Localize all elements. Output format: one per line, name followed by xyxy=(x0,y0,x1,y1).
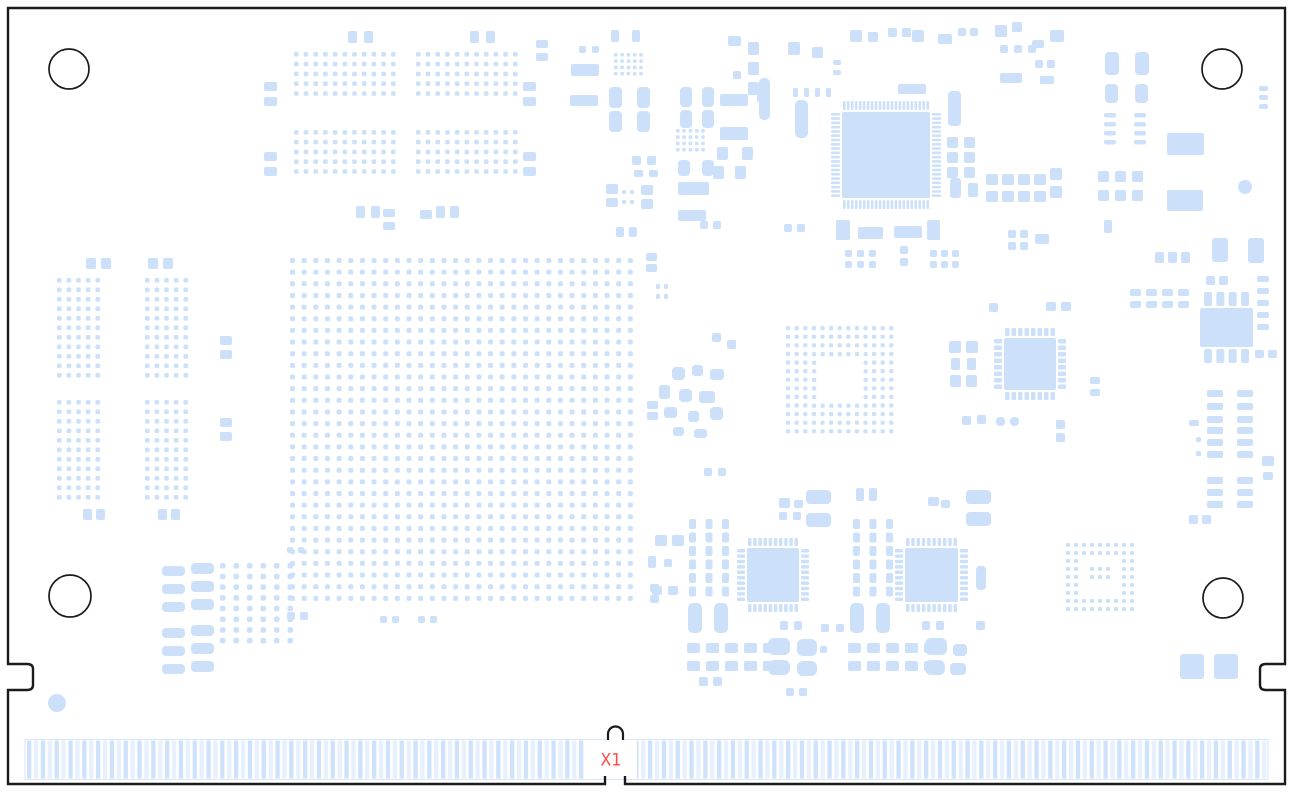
connector-pin xyxy=(1131,741,1135,779)
ic-pin xyxy=(1012,392,1017,400)
bga-ball xyxy=(581,340,586,345)
bga-ball xyxy=(465,526,470,531)
connector-pin xyxy=(172,741,176,779)
connector-pin xyxy=(269,741,273,779)
bga-ball xyxy=(313,340,318,345)
bga-ball xyxy=(465,81,470,86)
bga-ball xyxy=(441,340,446,345)
bga-ball xyxy=(812,326,816,330)
bga-ball xyxy=(546,258,551,263)
bga-ball xyxy=(313,491,318,496)
bga-ball xyxy=(416,130,421,135)
ic-pin xyxy=(994,352,1002,357)
ic-pin xyxy=(1058,365,1066,370)
bga-ball xyxy=(95,448,100,453)
bga-ball xyxy=(145,448,150,453)
bga-ball xyxy=(846,343,850,347)
ic-pin xyxy=(960,592,968,596)
bga-ball xyxy=(570,316,575,321)
connector-pin xyxy=(103,741,107,779)
bga-ball xyxy=(418,398,423,403)
bga-ball xyxy=(220,627,226,633)
bga-ball xyxy=(558,561,563,566)
bga-ball xyxy=(581,584,586,589)
bga-ball xyxy=(803,403,807,407)
bga-ball xyxy=(76,457,81,462)
bga-ball xyxy=(558,409,563,414)
bga-ball xyxy=(523,526,528,531)
bga-ball xyxy=(76,486,81,491)
bga-ball xyxy=(488,456,493,461)
bga-ball xyxy=(535,538,540,543)
bga-ball xyxy=(435,159,440,164)
bga-ball xyxy=(689,135,693,139)
bga-ball xyxy=(558,433,563,438)
bga-ball xyxy=(383,281,388,286)
capacitor-pad xyxy=(689,587,696,597)
bga-ball xyxy=(593,363,598,368)
bga-ball xyxy=(343,159,348,164)
bga-ball xyxy=(290,351,295,356)
bga-ball xyxy=(1130,599,1134,603)
bga-ball xyxy=(465,584,470,589)
ic-pin xyxy=(795,604,799,612)
bga-ball xyxy=(337,573,342,578)
bga-ball xyxy=(383,596,388,601)
bga-ball xyxy=(145,410,150,415)
bga-ball xyxy=(812,421,816,425)
bga-ball xyxy=(605,479,610,484)
connector-pin xyxy=(1152,741,1156,779)
bga-ball xyxy=(628,281,633,286)
bga-ball xyxy=(511,351,516,356)
bga-ball xyxy=(441,503,446,508)
bga-ball xyxy=(407,293,412,298)
bga-ball xyxy=(863,429,867,433)
bga-ball xyxy=(290,316,295,321)
connector-pin xyxy=(1034,741,1038,779)
passive-pad xyxy=(964,137,975,148)
bga-ball xyxy=(628,491,633,496)
passive-pad xyxy=(720,94,748,106)
bga-ball xyxy=(391,62,396,67)
bga-ball xyxy=(416,62,421,67)
bga-ball xyxy=(348,433,353,438)
bga-ball xyxy=(795,326,799,330)
bga-ball xyxy=(558,479,563,484)
bga-ball xyxy=(372,421,377,426)
bga-ball xyxy=(76,476,81,481)
bga-ball xyxy=(76,373,81,378)
bga-ball xyxy=(889,412,893,416)
bga-ball xyxy=(889,369,893,373)
bga-ball xyxy=(381,91,386,96)
connector-pin xyxy=(903,741,907,779)
bga-ball xyxy=(1074,591,1078,595)
bga-ball xyxy=(453,398,458,403)
passive-pad xyxy=(1135,52,1149,75)
passive-pad xyxy=(912,30,924,42)
bga-ball xyxy=(67,438,72,443)
bga-ball xyxy=(441,421,446,426)
bga-ball xyxy=(57,278,62,283)
bga-ball xyxy=(407,316,412,321)
passive-pad xyxy=(902,28,911,37)
bga-ball xyxy=(302,433,307,438)
bga-ball xyxy=(523,281,528,286)
bga-ball xyxy=(881,421,885,425)
bga-ball xyxy=(503,150,508,155)
bga-ball xyxy=(325,293,330,298)
bga-ball xyxy=(430,456,435,461)
passive-pad xyxy=(845,261,852,268)
bga-ball xyxy=(1122,575,1126,579)
ic-pin xyxy=(843,101,846,110)
bga-ball xyxy=(395,479,400,484)
bga-ball xyxy=(616,281,621,286)
passive-pad xyxy=(968,183,978,197)
bga-ball xyxy=(455,130,460,135)
bga-ball xyxy=(1130,583,1134,587)
ic-pin xyxy=(774,538,778,546)
passive-pad xyxy=(1046,302,1056,311)
bga-ball xyxy=(325,444,330,449)
bga-ball xyxy=(372,561,377,566)
passive-pad xyxy=(616,227,624,237)
bga-ball xyxy=(676,135,680,139)
bga-ball xyxy=(546,573,551,578)
connector-pin xyxy=(1055,741,1059,779)
connector-pin xyxy=(724,741,728,779)
bga-ball xyxy=(57,297,62,302)
bga-ball xyxy=(511,421,516,426)
bga-ball xyxy=(337,340,342,345)
bga-ball xyxy=(546,561,551,566)
bga-ball xyxy=(234,584,240,590)
bga-ball xyxy=(407,503,412,508)
bga-ball xyxy=(523,549,528,554)
ic-pin xyxy=(994,365,1002,370)
bga-ball xyxy=(465,62,470,67)
bga-ball xyxy=(881,429,885,433)
ic-pin xyxy=(938,538,942,546)
passive-pad xyxy=(836,624,844,632)
bga-ball xyxy=(593,421,598,426)
bga-ball xyxy=(616,421,621,426)
bga-ball xyxy=(348,526,353,531)
bga-ball xyxy=(395,351,400,356)
bga-ball xyxy=(523,468,528,473)
connector-pin xyxy=(1221,741,1225,779)
ic-pin xyxy=(960,554,968,558)
bga-ball xyxy=(383,468,388,473)
passive-pad xyxy=(804,88,809,97)
connector-pin xyxy=(683,741,687,779)
passive-pad xyxy=(900,246,908,254)
bga-ball xyxy=(1066,591,1070,595)
bga-ball xyxy=(234,574,240,580)
passive-pad xyxy=(96,509,105,520)
bga-ball xyxy=(628,375,633,380)
bga-ball xyxy=(430,270,435,275)
bga-ball xyxy=(164,307,169,312)
ic-pin xyxy=(831,194,840,197)
bga-ball xyxy=(889,352,893,356)
passive-pad xyxy=(941,500,950,508)
bga-ball xyxy=(343,91,348,96)
bga-ball xyxy=(288,638,294,644)
passive-pad xyxy=(1115,171,1126,182)
passive-pad xyxy=(1132,190,1143,201)
bga-ball xyxy=(829,352,833,356)
bga-ball xyxy=(313,52,318,57)
bga-ball xyxy=(183,297,188,302)
bga-ball xyxy=(546,351,551,356)
bga-ball xyxy=(570,491,575,496)
bga-ball xyxy=(881,335,885,339)
passive-pad xyxy=(720,127,748,140)
passive-pad xyxy=(611,30,619,42)
connector-pin xyxy=(572,741,576,779)
bga-ball xyxy=(323,159,328,164)
bga-ball xyxy=(465,444,470,449)
bga-ball xyxy=(465,538,470,543)
bga-ball xyxy=(535,433,540,438)
passive-pad xyxy=(702,110,714,128)
passive-pad xyxy=(300,612,308,620)
ic-pin xyxy=(932,156,941,159)
bga-ball xyxy=(288,584,294,590)
bga-ball xyxy=(333,130,338,135)
bga-ball xyxy=(290,444,295,449)
ic-pin xyxy=(831,169,840,172)
bga-ball xyxy=(247,638,253,644)
passive-pad xyxy=(1002,174,1014,185)
bga-ball xyxy=(795,369,799,373)
bga-ball xyxy=(855,429,859,433)
passive-pad xyxy=(1130,289,1141,296)
bga-ball xyxy=(620,53,624,57)
bga-ball xyxy=(838,326,842,330)
bga-ball xyxy=(337,328,342,333)
bga-ball xyxy=(86,486,91,491)
bga-ball xyxy=(465,169,470,174)
bga-ball xyxy=(701,148,705,152)
bga-ball xyxy=(348,305,353,310)
bga-ball xyxy=(313,328,318,333)
bga-ball xyxy=(523,258,528,263)
bga-ball xyxy=(441,305,446,310)
ic-pin xyxy=(926,200,929,209)
capacitor-pad xyxy=(722,533,729,543)
bga-ball xyxy=(616,363,621,368)
bga-ball xyxy=(372,479,377,484)
bga-ball xyxy=(313,140,318,145)
bga-ball xyxy=(476,293,481,298)
ic-pin xyxy=(918,101,921,110)
connector-pin xyxy=(551,741,555,779)
ic-pin xyxy=(831,147,840,150)
bga-ball xyxy=(605,468,610,473)
bga-ball xyxy=(1114,543,1118,547)
bga-ball xyxy=(863,326,867,330)
connector-pin xyxy=(524,741,528,779)
bga-ball xyxy=(593,503,598,508)
bga-ball xyxy=(488,468,493,473)
passive-pad xyxy=(450,206,459,218)
bga-ball xyxy=(500,421,505,426)
connector-pin xyxy=(400,741,404,779)
passive-pad xyxy=(650,595,659,603)
passive-pad xyxy=(1020,242,1028,250)
bga-ball xyxy=(465,421,470,426)
bga-ball xyxy=(1130,567,1134,571)
ic-pin xyxy=(895,581,903,585)
bga-ball xyxy=(474,169,479,174)
connector-pin xyxy=(62,741,66,779)
bga-ball xyxy=(57,326,62,331)
bga-ball xyxy=(164,297,169,302)
bga-ball xyxy=(511,409,516,414)
passive-pad xyxy=(630,200,634,204)
bga-ball xyxy=(426,159,431,164)
bga-ball xyxy=(846,335,850,339)
bga-ball xyxy=(57,467,62,472)
connector-pin xyxy=(703,741,707,779)
connector-pin xyxy=(41,741,45,779)
bga-ball xyxy=(1122,599,1126,603)
passive-pad xyxy=(900,258,908,266)
bga-ball xyxy=(164,495,169,500)
bga-ball xyxy=(593,573,598,578)
bga-ball xyxy=(407,538,412,543)
bga-ball xyxy=(164,373,169,378)
ic-pin xyxy=(960,576,968,580)
bga-ball xyxy=(593,433,598,438)
bga-ball xyxy=(418,305,423,310)
bga-ball xyxy=(558,596,563,601)
bga-ball xyxy=(261,574,267,580)
bga-ball xyxy=(682,129,686,133)
bga-ball xyxy=(313,468,318,473)
bga-ball xyxy=(313,281,318,286)
passive-pad xyxy=(950,178,961,198)
bga-ball xyxy=(812,412,816,416)
passive-pad xyxy=(848,643,861,653)
bga-ball xyxy=(453,584,458,589)
bga-ball xyxy=(323,140,328,145)
ic-pin xyxy=(831,134,840,137)
ic-pin xyxy=(879,200,882,209)
bga-ball xyxy=(570,293,575,298)
bga-ball xyxy=(605,375,610,380)
bga-ball xyxy=(183,410,188,415)
bga-ball xyxy=(418,316,423,321)
bga-ball xyxy=(627,72,631,76)
bga-ball xyxy=(426,130,431,135)
bga-ball xyxy=(455,91,460,96)
bga-ball xyxy=(435,140,440,145)
passive-pad xyxy=(700,221,708,229)
bga-ball xyxy=(155,307,160,312)
capacitor-pad xyxy=(722,546,729,556)
bga-ball xyxy=(616,549,621,554)
bga-ball xyxy=(500,514,505,519)
bga-ball xyxy=(383,316,388,321)
bga-ball xyxy=(453,316,458,321)
bga-ball xyxy=(290,526,295,531)
bga-ball xyxy=(441,468,446,473)
bga-ball xyxy=(465,130,470,135)
bga-ball xyxy=(220,563,226,569)
bga-ball xyxy=(360,375,365,380)
bga-ball xyxy=(628,340,633,345)
bga-ball xyxy=(445,81,450,86)
bga-ball xyxy=(620,59,624,63)
bga-ball xyxy=(628,503,633,508)
bga-ball xyxy=(57,448,62,453)
bga-ball xyxy=(1114,599,1118,603)
bga-ball xyxy=(418,491,423,496)
bga-ball xyxy=(304,150,309,155)
bga-ball xyxy=(628,258,633,263)
passive-pad xyxy=(632,156,641,165)
pcb-drawing-svg: X1 xyxy=(0,0,1297,799)
bga-ball xyxy=(803,395,807,399)
passive-pad xyxy=(1035,60,1043,68)
ic-pin xyxy=(1005,392,1010,400)
bga-ball xyxy=(605,456,610,461)
bga-ball xyxy=(455,62,460,67)
bga-ball xyxy=(616,596,621,601)
ic-pin xyxy=(831,190,840,193)
bga-ball xyxy=(95,278,100,283)
bga-ball xyxy=(288,606,294,612)
passive-pad xyxy=(710,407,723,420)
bga-ball xyxy=(395,468,400,473)
bga-ball xyxy=(616,409,621,414)
bga-ball xyxy=(889,403,893,407)
bga-ball xyxy=(829,412,833,416)
bga-ball xyxy=(313,62,318,67)
bga-ball xyxy=(145,316,150,321)
bga-ball xyxy=(261,638,267,644)
bga-ball xyxy=(628,526,633,531)
passive-pad xyxy=(158,509,167,520)
bga-ball xyxy=(855,335,859,339)
bga-ball xyxy=(1098,607,1102,611)
passive-pad xyxy=(383,222,395,230)
ic-pin xyxy=(831,156,840,159)
bga-ball xyxy=(348,503,353,508)
passive-pad xyxy=(1207,451,1223,458)
bga-ball xyxy=(503,159,508,164)
bga-ball xyxy=(430,491,435,496)
bga-ball xyxy=(360,514,365,519)
ic-pin xyxy=(748,604,752,612)
bga-ball xyxy=(881,360,885,364)
bga-ball xyxy=(395,421,400,426)
bga-ball xyxy=(183,476,188,481)
ic-pin xyxy=(932,113,941,116)
bga-ball xyxy=(183,438,188,443)
passive-pad xyxy=(629,227,637,237)
ic-pin xyxy=(1005,328,1010,336)
bga-ball xyxy=(234,606,240,612)
bga-ball xyxy=(605,433,610,438)
passive-pad xyxy=(710,369,724,380)
bga-ball xyxy=(605,596,610,601)
